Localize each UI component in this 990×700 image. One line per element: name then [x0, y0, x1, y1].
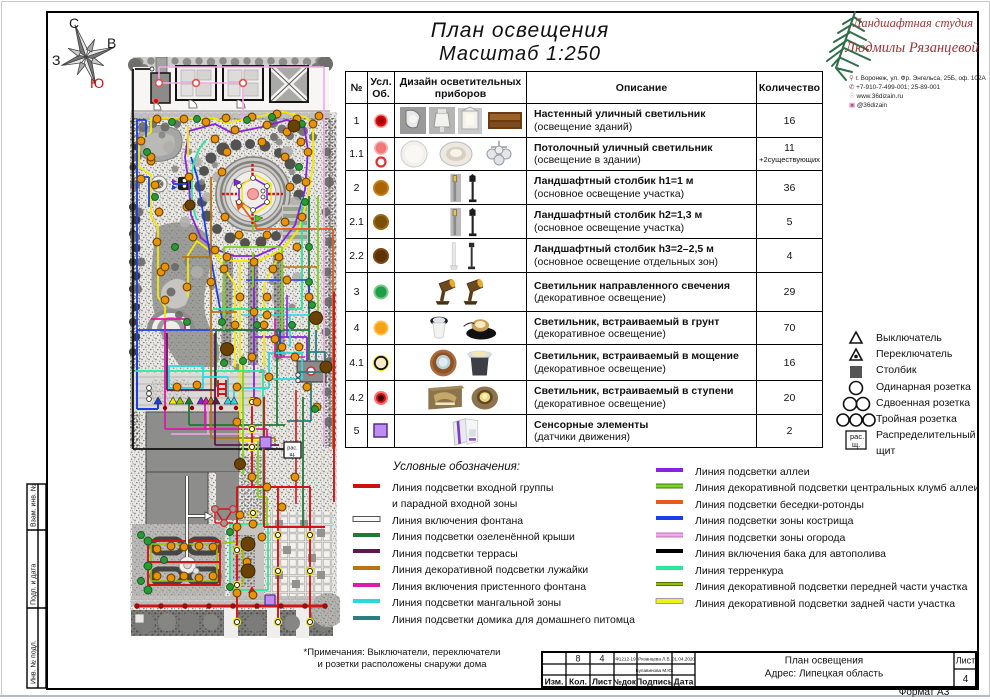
svg-text:Подп. и дата: Подп. и дата [31, 564, 38, 605]
svg-text:Инв. № подл.: Инв. № подл. [31, 640, 38, 684]
svg-text:Ю: Ю [90, 75, 104, 91]
svg-text:4: 4 [599, 654, 604, 664]
svg-text:Лист: Лист [592, 677, 612, 687]
svg-text:Взам. инв. №: Взам. инв. № [31, 484, 38, 527]
svg-text:Кол.: Кол. [569, 677, 587, 687]
svg-text:рас.: рас. [287, 446, 298, 452]
svg-text:З: З [52, 52, 60, 68]
svg-text:4: 4 [963, 674, 969, 685]
svg-text:Лист: Лист [956, 656, 976, 666]
svg-text:В: В [107, 35, 116, 51]
svg-text:План освещения: План освещения [785, 656, 863, 667]
svg-text:щ.: щ. [852, 440, 860, 449]
svg-text:8: 8 [575, 654, 580, 664]
svg-text:Ф1212-19: Ф1212-19 [615, 657, 636, 662]
svg-text:Дата: Дата [674, 677, 694, 687]
svg-text:Рязанцева Л.В.: Рязанцева Л.В. [638, 657, 671, 662]
svg-text:C: C [69, 15, 79, 31]
svg-text:Булавинова М.Ю.: Булавинова М.Ю. [636, 668, 674, 673]
svg-text:Изм.: Изм. [545, 677, 564, 687]
svg-text:01.04.2020: 01.04.2020 [672, 657, 695, 662]
svg-text:Подпись: Подпись [636, 677, 673, 687]
svg-text:№док.: №док. [613, 678, 638, 687]
svg-text:Адрес: Липецкая область: Адрес: Липецкая область [765, 668, 883, 680]
svg-text:щ.: щ. [289, 452, 296, 458]
